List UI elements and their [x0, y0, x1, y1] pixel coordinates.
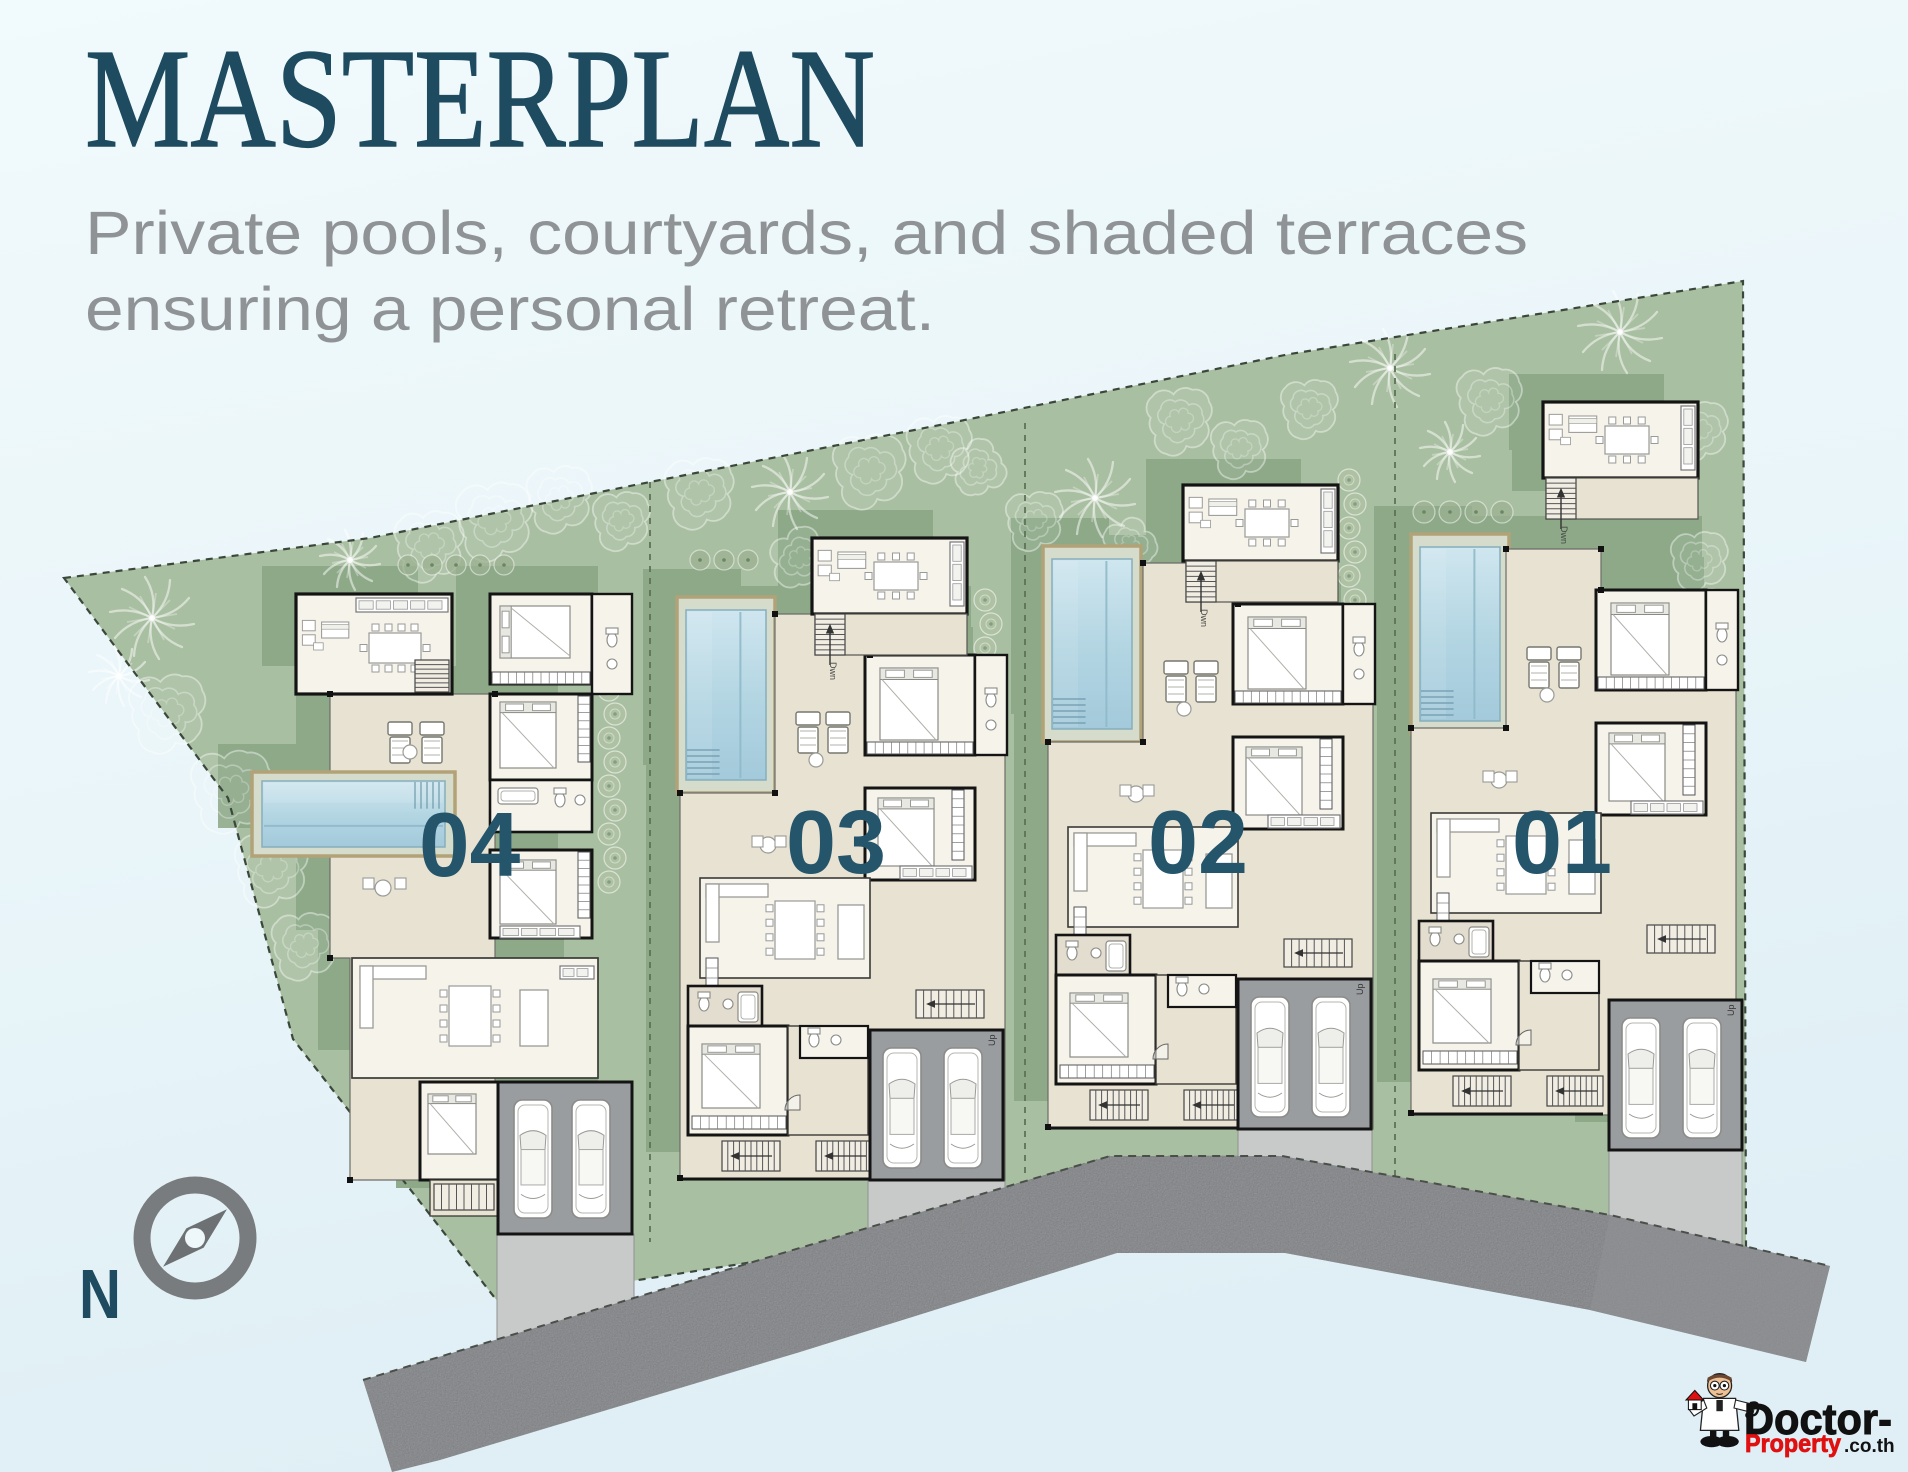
svg-text:Private pools, courtyards, and: Private pools, courtyards, and shaded te…	[85, 199, 1528, 267]
svg-text:04: 04	[419, 795, 521, 896]
svg-text:Up: Up	[987, 1034, 997, 1046]
svg-text:Up: Up	[1726, 1004, 1736, 1016]
svg-text:Property: Property	[1745, 1430, 1841, 1458]
svg-text:02: 02	[1148, 793, 1248, 893]
svg-text:N: N	[79, 1255, 121, 1333]
svg-text:ensuring a personal retreat.: ensuring a personal retreat.	[85, 275, 935, 343]
svg-text:Dwn: Dwn	[828, 662, 838, 680]
svg-text:MASTERPLAN: MASTERPLAN	[85, 19, 875, 177]
svg-text:03: 03	[786, 793, 886, 893]
svg-text:.co.th: .co.th	[1844, 1436, 1895, 1457]
svg-text:Dwn: Dwn	[1559, 526, 1569, 544]
svg-text:Dwn: Dwn	[1199, 609, 1209, 627]
svg-text:01: 01	[1512, 793, 1612, 893]
svg-text:Up: Up	[1355, 983, 1365, 995]
